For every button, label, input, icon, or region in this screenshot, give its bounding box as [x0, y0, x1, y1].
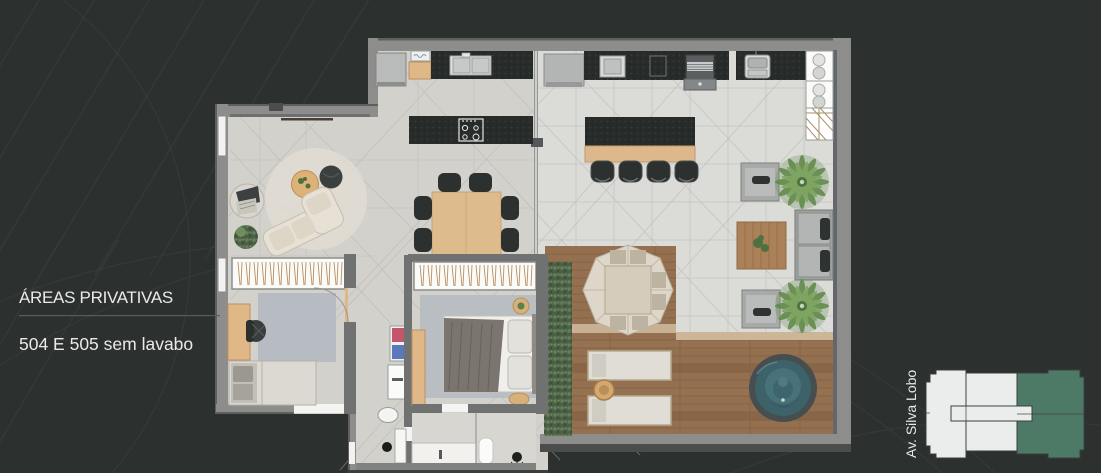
svg-text:Av. Silva Lobo: Av. Silva Lobo	[903, 370, 919, 458]
svg-text:504 E 505 sem lavabo: 504 E 505 sem lavabo	[19, 334, 193, 354]
svg-text:ÁREAS PRIVATIVAS: ÁREAS PRIVATIVAS	[19, 288, 173, 307]
